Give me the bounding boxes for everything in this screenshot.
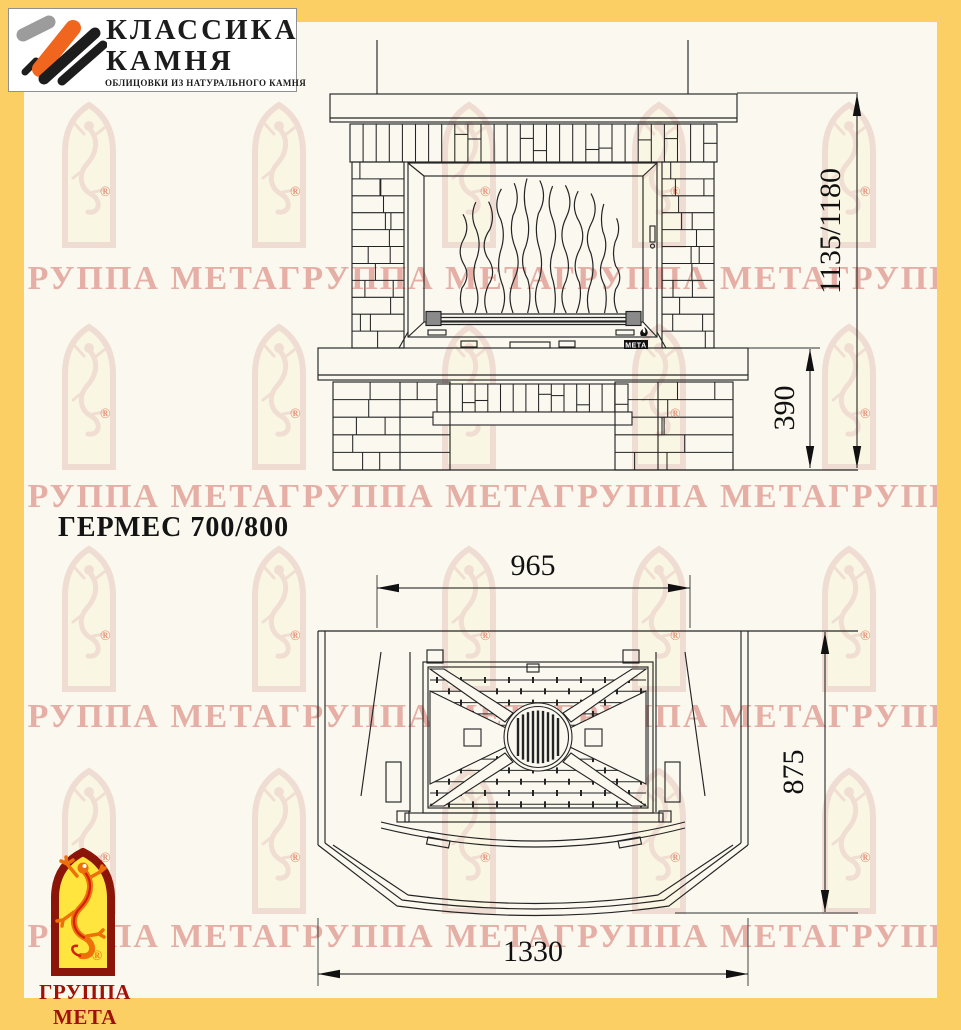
svg-text:®: ®	[290, 185, 301, 200]
salamander-logo-icon: ®	[50, 848, 116, 976]
svg-text:®: ®	[290, 629, 301, 644]
watermark-text-row: ГРУППА МЕТАГРУППА МЕТАГРУППА МЕТАГРУППА …	[4, 478, 961, 515]
air-vent-left	[428, 330, 446, 335]
ash-grille	[426, 314, 641, 325]
svg-text:®: ®	[290, 407, 301, 422]
svg-text:®: ®	[860, 185, 871, 200]
chimney-lines	[377, 40, 688, 94]
registered-mark: ®	[92, 949, 103, 964]
meta-brand-plate-label: МЕТА	[625, 343, 646, 350]
flame-icon	[640, 327, 648, 336]
air-vent-right	[616, 330, 634, 335]
base-soldier-band	[437, 384, 628, 412]
brand-line2: КАМНЯ	[106, 47, 234, 76]
control-slider	[510, 342, 550, 348]
dim-height-label: 1135/1180	[814, 168, 847, 294]
svg-text:®: ®	[290, 851, 301, 866]
svg-text:®: ®	[480, 851, 491, 866]
svg-text:®: ®	[480, 185, 491, 200]
svg-text:®: ®	[100, 629, 111, 644]
frame-left	[0, 22, 24, 1024]
svg-text:®: ®	[670, 407, 681, 422]
svg-text:®: ®	[100, 407, 111, 422]
svg-text:®: ®	[860, 851, 871, 866]
frame-bottom	[24, 998, 937, 1024]
page: { "header_logo": { "line1": "КЛАССИКА", …	[0, 0, 961, 1024]
svg-text:®: ®	[860, 407, 871, 422]
svg-text:®: ®	[670, 851, 681, 866]
dim-base-height-label: 390	[768, 386, 801, 431]
watermark-text-row: ГРУППА МЕТАГРУППА МЕТАГРУППА МЕТАГРУППА …	[4, 918, 961, 955]
base-ledge	[433, 412, 632, 425]
brand-line1: КЛАССИКА	[106, 16, 299, 45]
brand-subtitle: ОБЛИЦОВКИ ИЗ НАТУРАЛЬНОГО КАМНЯ	[105, 78, 306, 88]
dim-depth-label: 875	[777, 750, 810, 795]
footer-brand-label: ГРУППА МЕТА	[10, 980, 160, 1030]
dim-base-width-label: 1330	[503, 935, 563, 968]
control-knob	[559, 341, 575, 347]
grille-slats	[518, 711, 558, 764]
svg-text:®: ®	[100, 185, 111, 200]
brand-strokes-icon	[15, 14, 107, 86]
svg-text:®: ®	[860, 629, 871, 644]
frame-right	[937, 22, 961, 1024]
base-left-column	[333, 382, 450, 470]
left-pillar	[352, 162, 404, 348]
page-title: ГЕРМЕС 700/800	[58, 512, 289, 544]
header-logo-box: КЛАССИКА КАМНЯ ОБЛИЦОВКИ ИЗ НАТУРАЛЬНОГО…	[8, 8, 297, 92]
dim-firebox-width-label: 965	[511, 549, 556, 582]
